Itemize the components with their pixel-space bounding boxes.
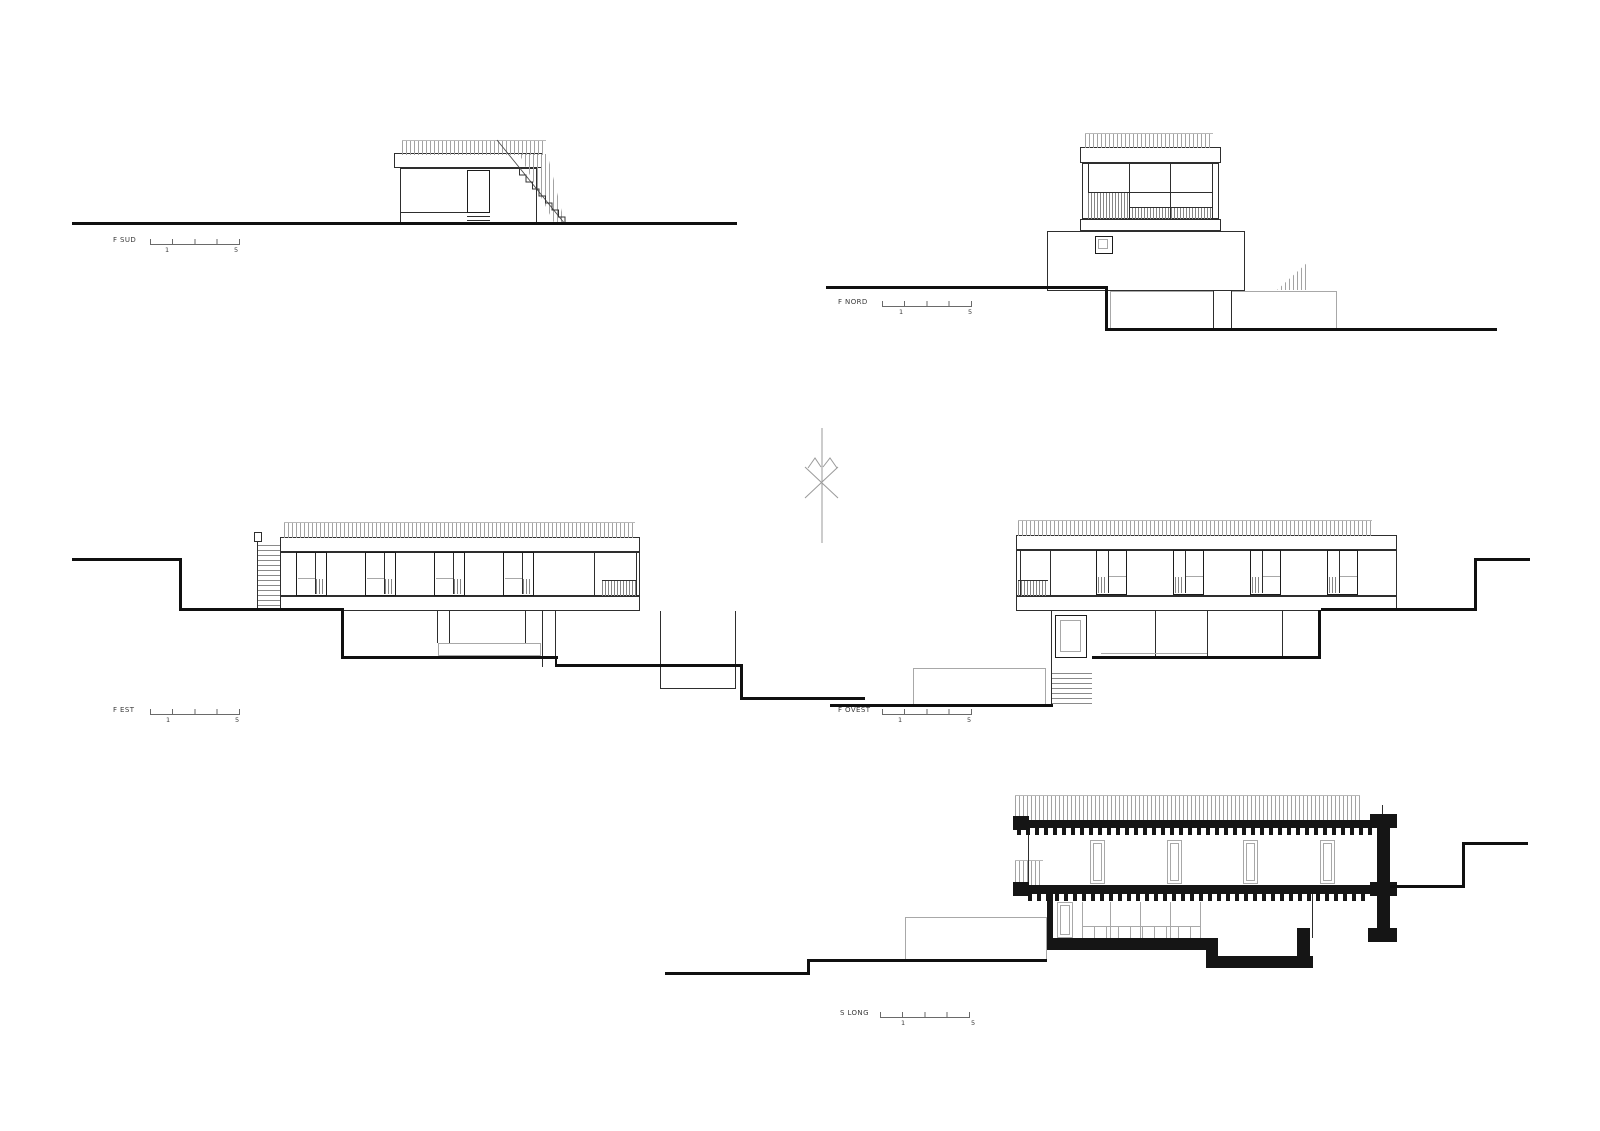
partition-line (525, 611, 526, 643)
f-nord-elevation: F NORD 1 5 (820, 128, 1510, 343)
roof-fascia (1016, 535, 1397, 550)
window (365, 552, 396, 596)
loggia-jamb (594, 552, 595, 596)
porch-line (1101, 653, 1207, 654)
railing-hatch (1129, 207, 1213, 219)
tree-symbol (790, 420, 854, 550)
roof-joist-hatch (1017, 828, 1388, 835)
roof-railing-hatch (1085, 133, 1213, 148)
entry-door-jamb (437, 611, 438, 643)
lower-wall-edge (1051, 611, 1052, 672)
lower-door (1055, 615, 1087, 658)
terrain-step (1474, 558, 1477, 611)
stair-steps (513, 168, 565, 224)
loggia-jamb (1020, 550, 1021, 596)
external-stair (257, 545, 280, 611)
cut-wall (1047, 894, 1053, 938)
terrain-line (344, 656, 558, 659)
terrain-line (826, 286, 1108, 289)
glazing-mullion (1140, 902, 1141, 938)
terrain-step (1105, 286, 1108, 331)
railing-top-line (1129, 207, 1213, 208)
scale-number: 5 (967, 716, 971, 724)
basement-door (1213, 291, 1232, 331)
scale-bar (150, 239, 240, 245)
terrain-step (740, 664, 743, 700)
drawing-sheet: F SUD 1 5 F NORD 1 5 (0, 0, 1600, 1131)
loggia-railing-hatch (602, 580, 636, 596)
terrain-line (743, 697, 865, 700)
section-door (1243, 840, 1258, 884)
terrain-line (810, 959, 1047, 962)
ground-slab (1047, 938, 1218, 950)
terrain-line (1465, 842, 1528, 845)
lower-wall-base (660, 688, 736, 689)
railing-top-line (602, 580, 636, 581)
drawing-label: F EST (113, 706, 134, 714)
scale-bar (150, 709, 240, 715)
floor-band (1080, 219, 1221, 231)
window (1096, 550, 1127, 595)
terrain-line (182, 608, 344, 611)
terrain-step (341, 608, 344, 659)
scale-number: 1 (901, 1019, 905, 1027)
section-door (1090, 840, 1105, 884)
stair-stringer (1051, 672, 1052, 704)
terrain-line (72, 222, 737, 225)
terrain-line (1321, 608, 1477, 611)
scale-number: 1 (166, 716, 170, 724)
scale-number: 5 (968, 308, 972, 316)
roof-slab (1015, 820, 1390, 828)
terrain-line (1390, 885, 1465, 888)
floor-joist-hatch (1028, 894, 1370, 901)
small-window (1095, 236, 1113, 254)
glazing-mullion (1200, 902, 1201, 938)
entry-door-jamb (449, 611, 450, 643)
upper-facade-line (1028, 835, 1029, 885)
glazing-mullion (1170, 902, 1171, 938)
scale-number: 5 (234, 246, 238, 254)
lower-wall-edge (660, 611, 661, 689)
scale-bar (882, 301, 972, 307)
lower-wall-edge (1282, 611, 1283, 656)
stair-newel (254, 532, 262, 542)
terrain-step (179, 558, 182, 611)
f-est-elevation: F EST 1 5 (70, 420, 800, 732)
loggia-jamb (636, 552, 637, 596)
retaining-wall-box (913, 668, 1046, 707)
glazing-mullion (1110, 902, 1111, 938)
f-sud-elevation: F SUD 1 5 (70, 128, 750, 263)
section-door (1320, 840, 1335, 884)
roof-fascia (1080, 147, 1221, 163)
roof-railing-hatch (1018, 520, 1372, 536)
floor-slab-end-block (1013, 882, 1029, 896)
deck-board-hatch (1082, 926, 1200, 938)
terrain-line (557, 664, 742, 667)
scale-bar (880, 1012, 970, 1018)
glazing-transom (1088, 192, 1213, 193)
drawing-label: S LONG (840, 1009, 869, 1017)
terrain-line (72, 558, 182, 561)
glazing-mullion (1129, 163, 1130, 219)
section-door (1167, 840, 1182, 884)
loggia-railing-hatch (1018, 580, 1048, 596)
drawing-label: F OVEST (838, 706, 870, 714)
partition-line (1207, 611, 1208, 656)
scale-number: 5 (235, 716, 239, 724)
plinth-line (400, 212, 467, 213)
roof-railing-hatch (1015, 795, 1360, 821)
wall-footing (1368, 928, 1397, 942)
window (1173, 550, 1204, 595)
f-ovest-elevation: F OVEST 1 5 (790, 420, 1540, 732)
stair-hatch-triangle (1277, 262, 1308, 290)
roof-railing-hatch (284, 522, 635, 538)
stair-stringer (257, 542, 258, 611)
partition-line (1155, 611, 1156, 656)
lower-volume (1047, 231, 1245, 291)
terrain-line (1108, 328, 1497, 331)
drawing-label: F NORD (838, 298, 868, 306)
window (1250, 550, 1281, 595)
drawing-label: F SUD (113, 236, 136, 244)
window (1327, 550, 1358, 595)
lower-wall-edge (735, 611, 736, 689)
window-pane (1098, 239, 1108, 249)
loggia-jamb (1050, 550, 1051, 596)
section-door (1057, 902, 1073, 938)
entry-platform (438, 643, 541, 656)
footing-block (1297, 928, 1310, 956)
terrain-line (830, 704, 1053, 707)
door-step (467, 220, 490, 221)
window (434, 552, 465, 596)
scale-number: 1 (165, 246, 169, 254)
door-step (467, 216, 490, 217)
window (503, 552, 534, 596)
glazing-mullion (1170, 163, 1171, 219)
terrace-box (905, 917, 1047, 962)
terrain-step (1318, 610, 1321, 659)
deck-line (1082, 926, 1200, 927)
cut-wall-right (1377, 828, 1390, 938)
scale-bar (882, 709, 972, 715)
railing-hatch (1088, 192, 1129, 219)
scale-number: 1 (899, 308, 903, 316)
terrain-line (665, 972, 810, 975)
corner-post (1212, 163, 1219, 219)
glazing-mullion (1082, 902, 1083, 938)
roof-slab-end-block (1370, 814, 1397, 828)
terrain-step (1462, 842, 1465, 888)
floor-slab (1015, 885, 1390, 894)
roof-fascia (280, 537, 640, 552)
door (467, 170, 490, 213)
scale-number: 1 (898, 716, 902, 724)
terrain-line (1477, 558, 1530, 561)
foundation-pad (1206, 956, 1313, 968)
terrain-line (1092, 656, 1321, 659)
external-stair (1051, 672, 1092, 704)
window (296, 552, 327, 596)
railing-top-line (1018, 580, 1048, 581)
s-long-section: S LONG 1 5 (660, 788, 1540, 1028)
scale-number: 5 (971, 1019, 975, 1027)
